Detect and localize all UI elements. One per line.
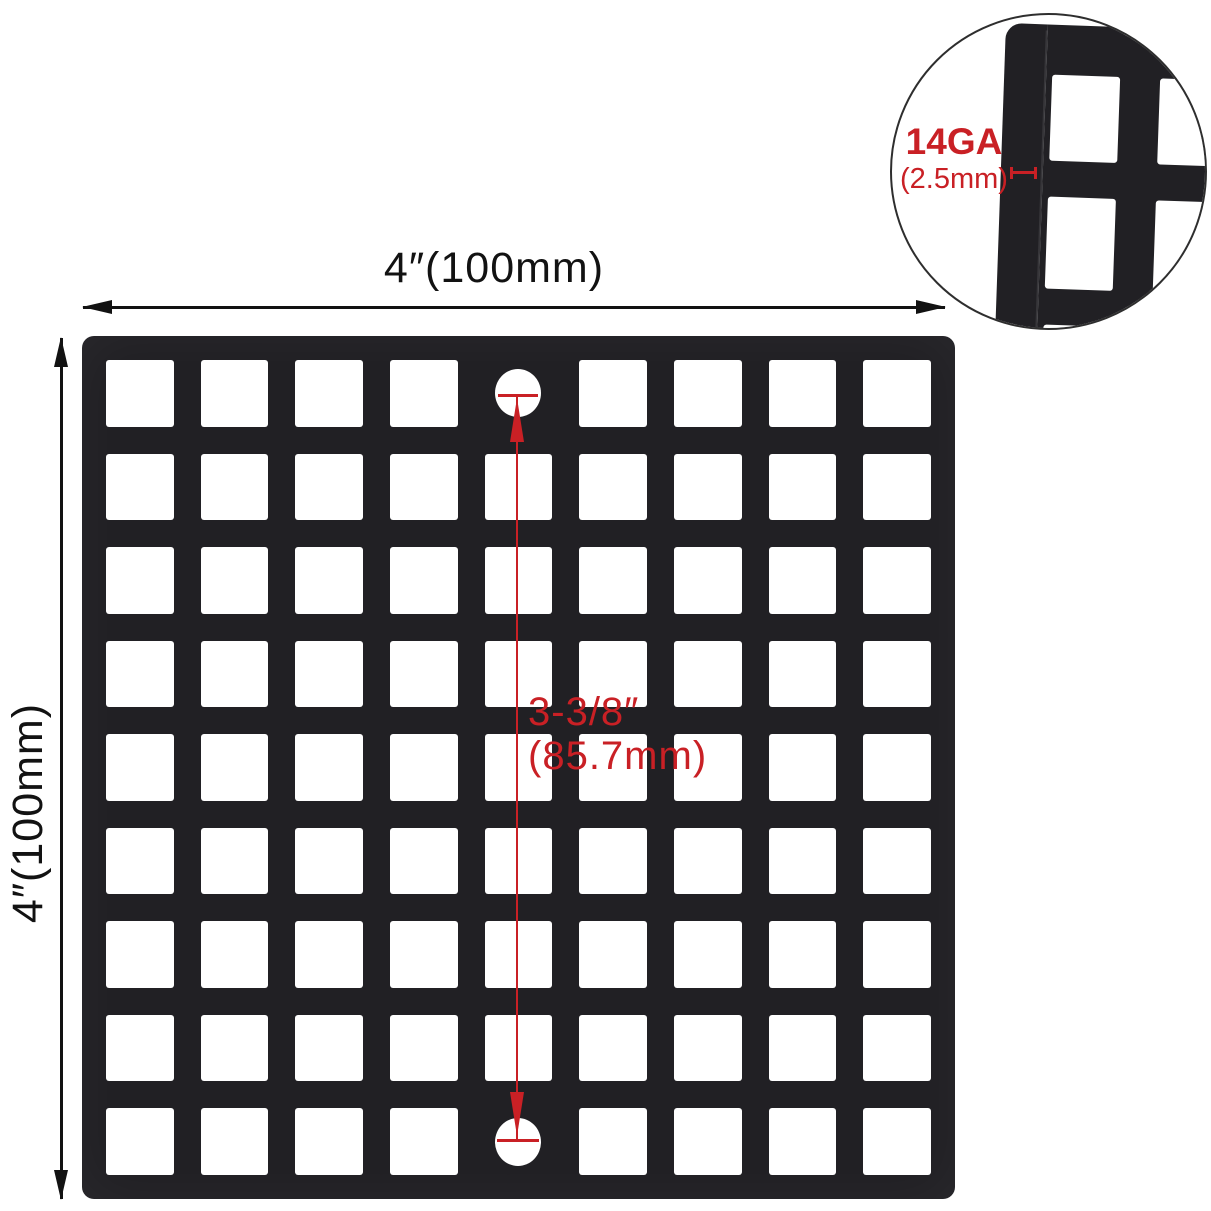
grate-hole — [295, 547, 363, 614]
grate-hole — [485, 454, 553, 521]
grate-hole — [579, 454, 647, 521]
arrow-up-icon — [54, 337, 68, 367]
grate-hole — [390, 1108, 458, 1175]
arrow-down-icon — [54, 1170, 68, 1200]
closeup-hole — [1157, 78, 1207, 166]
grate-hole — [106, 547, 174, 614]
arrow-left-icon — [82, 300, 112, 314]
grate-hole — [295, 1015, 363, 1082]
grate-hole — [106, 921, 174, 988]
red-arrow-up-icon — [510, 398, 524, 442]
thickness-marker-icon — [1010, 167, 1037, 179]
grate-hole — [674, 1015, 742, 1082]
grate-hole — [674, 547, 742, 614]
grate-hole — [674, 828, 742, 895]
product-dimension-diagram: 4″(100mm) 4″(100mm) 3-3/8″ (85.7mm) 14GA… — [0, 0, 1211, 1211]
grate-hole — [863, 547, 931, 614]
grate-hole — [863, 1108, 931, 1175]
closeup-hole — [1049, 75, 1120, 163]
arrow-right-icon — [916, 300, 946, 314]
grate-hole — [579, 921, 647, 988]
grate-hole — [769, 1015, 837, 1082]
grate-hole — [295, 921, 363, 988]
grate-hole — [769, 360, 837, 427]
grate-hole — [769, 921, 837, 988]
grate-hole — [295, 734, 363, 801]
grate-hole — [106, 454, 174, 521]
red-arrow-down-icon — [510, 1092, 524, 1136]
hole-spacing-label: 3-3/8″ (85.7mm) — [528, 690, 707, 778]
closeup-hole — [1040, 324, 1111, 330]
grate-hole — [106, 1015, 174, 1082]
grate-hole — [295, 454, 363, 521]
grate-hole — [674, 454, 742, 521]
grate-hole — [485, 921, 553, 988]
grate-hole — [579, 547, 647, 614]
width-dimension-label: 4″(100mm) — [294, 244, 694, 293]
hole-spacing-inches: 3-3/8″ — [528, 690, 707, 734]
grate-closeup-face — [1032, 24, 1207, 330]
height-dimension-label: 4″(100mm) — [4, 613, 52, 1013]
grate-hole — [201, 454, 269, 521]
grate-hole — [769, 641, 837, 708]
gauge-label: 14GA — [902, 121, 1006, 163]
grate-hole — [295, 360, 363, 427]
grate-hole — [769, 454, 837, 521]
grate-hole — [295, 641, 363, 708]
grate-hole — [295, 828, 363, 895]
grate-hole — [201, 1015, 269, 1082]
hole-spacing-dimension-line — [516, 396, 518, 1141]
grate-hole — [674, 921, 742, 988]
thickness-label: (2.5mm) — [896, 163, 1012, 196]
grate-hole — [295, 1108, 363, 1175]
drain-grate — [82, 336, 955, 1199]
grate-hole — [863, 641, 931, 708]
closeup-hole — [1045, 197, 1116, 291]
grate-hole — [390, 547, 458, 614]
grate-hole — [201, 1108, 269, 1175]
grate-hole — [106, 641, 174, 708]
grate-hole — [201, 921, 269, 988]
grate-hole — [390, 921, 458, 988]
grate-hole — [485, 828, 553, 895]
width-dimension-line — [83, 306, 945, 309]
grate-hole — [863, 734, 931, 801]
grate-hole — [390, 1015, 458, 1082]
grate-hole — [390, 360, 458, 427]
grate-hole — [485, 1015, 553, 1082]
grate-hole — [106, 1108, 174, 1175]
hole-spacing-top-tick — [498, 394, 538, 397]
grate-hole — [201, 734, 269, 801]
grate-hole — [390, 828, 458, 895]
grate-hole — [106, 828, 174, 895]
grate-hole — [674, 360, 742, 427]
grate-hole — [390, 734, 458, 801]
grate-hole — [863, 921, 931, 988]
closeup-hole — [1148, 328, 1207, 330]
grate-hole — [769, 1108, 837, 1175]
grate-hole — [863, 1015, 931, 1082]
grate-hole — [485, 547, 553, 614]
hole-spacing-bottom-tick — [497, 1139, 539, 1142]
grate-hole — [201, 641, 269, 708]
grate-hole — [201, 360, 269, 427]
grate-hole — [863, 360, 931, 427]
grate-hole — [390, 454, 458, 521]
grate-hole — [674, 1108, 742, 1175]
grate-hole — [769, 547, 837, 614]
grate-hole — [106, 360, 174, 427]
grate-hole — [106, 734, 174, 801]
grate-hole — [579, 360, 647, 427]
grate-hole — [863, 828, 931, 895]
grate-hole — [579, 1015, 647, 1082]
height-dimension-line — [60, 338, 63, 1199]
thickness-detail-inset: 14GA (2.5mm) — [890, 13, 1207, 330]
grate-hole — [769, 828, 837, 895]
grate-hole — [579, 1108, 647, 1175]
hole-spacing-mm: (85.7mm) — [528, 734, 707, 778]
grate-hole — [769, 734, 837, 801]
grate-hole — [390, 641, 458, 708]
grate-hole — [201, 547, 269, 614]
grate-hole — [863, 454, 931, 521]
closeup-hole — [1153, 200, 1207, 294]
grate-hole — [579, 828, 647, 895]
grate-hole — [201, 828, 269, 895]
